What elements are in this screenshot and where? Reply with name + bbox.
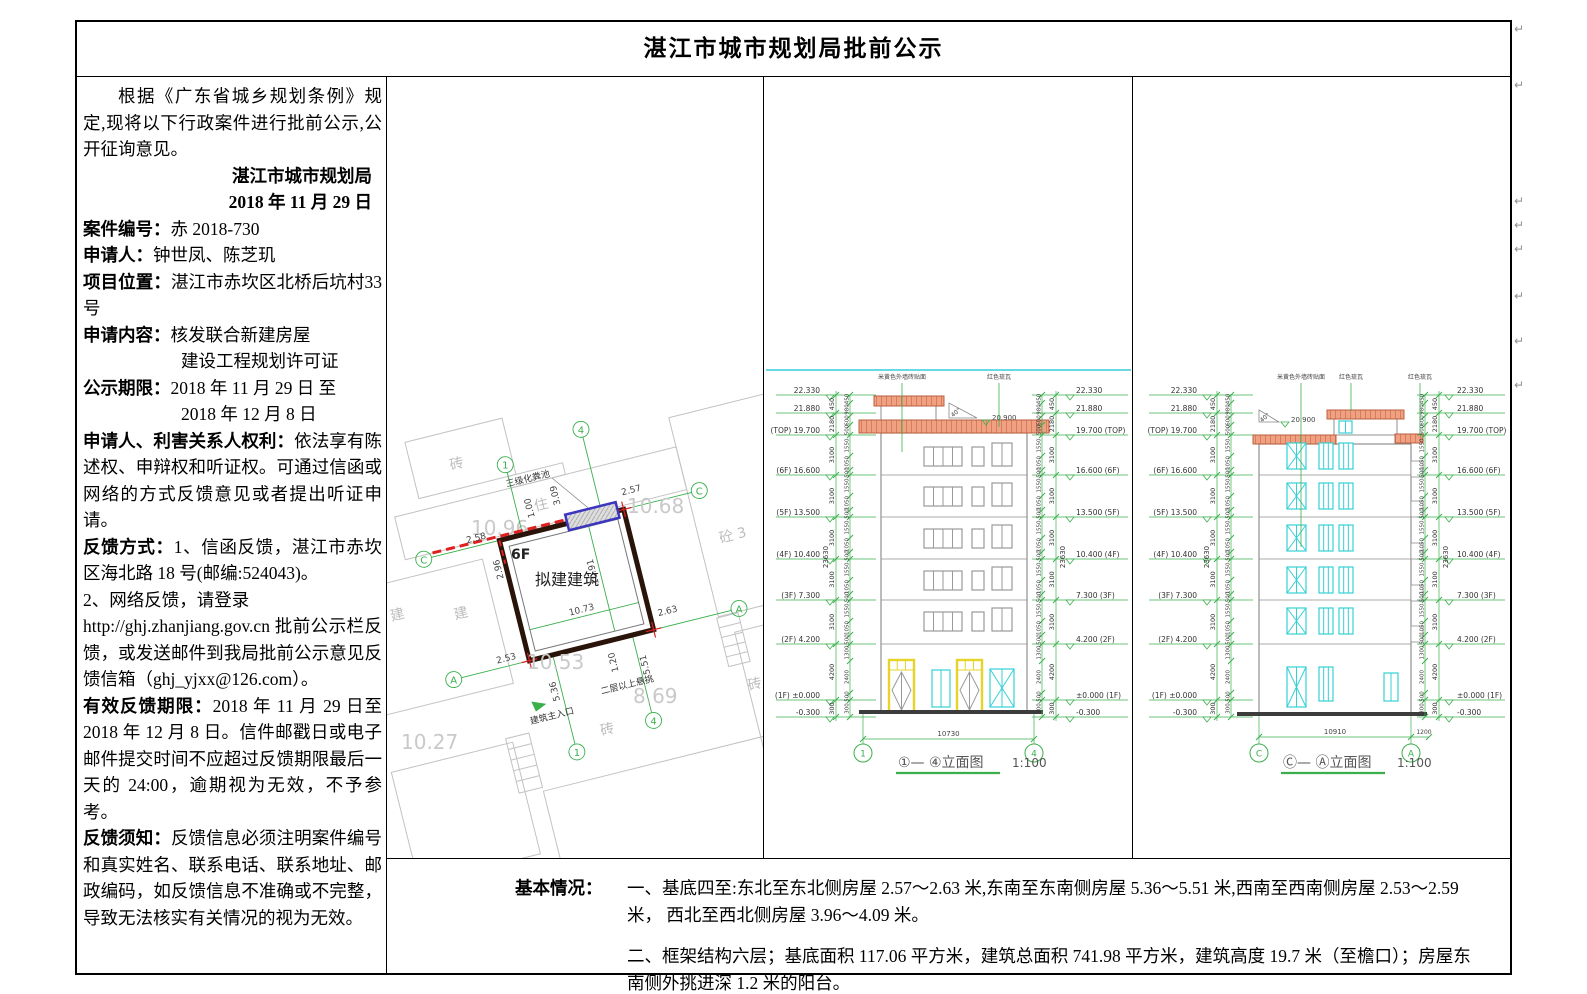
dim-value: 3100 xyxy=(1209,530,1217,547)
window xyxy=(1319,667,1333,701)
dim-value: 3100 xyxy=(828,488,836,505)
window xyxy=(972,447,984,466)
svg-text:1: 1 xyxy=(574,748,580,759)
level-label: (6F) 16.600 xyxy=(1153,466,1197,475)
roof-tile-band xyxy=(1327,410,1404,419)
total-dim: 23630 xyxy=(822,546,830,568)
site-plan-panel: 10.96 砖 住 砼 3 建 xyxy=(387,77,764,858)
period-value-2: 2018 年 12 月 8 日 xyxy=(181,401,382,428)
level-label: 4.200 (2F) xyxy=(1076,635,1115,644)
level-label: 21.880 xyxy=(1076,404,1102,413)
window xyxy=(1319,443,1333,469)
level-marker-icon xyxy=(1066,475,1074,480)
dim-value: 450 xyxy=(1048,398,1056,410)
level-label: (1F) ±0.000 xyxy=(775,691,820,700)
level-marker-icon xyxy=(1203,717,1211,722)
level-label: 4.200 (2F) xyxy=(1457,635,1496,644)
level-marker-icon xyxy=(1445,435,1453,440)
total-dim: 23630 xyxy=(1203,546,1211,568)
dim-value: 300 xyxy=(828,702,836,714)
dim-value: 300 xyxy=(845,703,851,714)
neighbor-label: 建 xyxy=(452,604,469,623)
dim-value: 2180 xyxy=(1209,416,1217,433)
dim-value: 450 xyxy=(1037,393,1043,404)
dim-value: 3100 xyxy=(1048,614,1056,631)
annotation-label: 红色琉瓦 xyxy=(1408,373,1432,381)
window xyxy=(972,487,984,506)
dim-value: 450 xyxy=(1209,398,1217,410)
dim-value: 980 xyxy=(1420,404,1426,415)
svg-text:4: 4 xyxy=(650,716,656,727)
dim-value: 500 xyxy=(845,508,851,519)
notice-row: 反馈须知：反馈信息必须注明案件编号和真实姓名、联系电话、联系地址、邮政编码，如反… xyxy=(83,825,382,931)
dim-value: 500 xyxy=(1037,591,1043,602)
level-label: (5F) 13.500 xyxy=(1153,508,1197,517)
dim-value: 500 xyxy=(1226,467,1232,478)
applicant-row: 申请人：钟世凤、陈芝玑 xyxy=(83,242,382,269)
dim-value: 500 xyxy=(845,467,851,478)
feedback-url-row: http://ghj.zhanjiang.gov.cn 批前公示栏反馈，或发送邮… xyxy=(83,613,382,693)
dim-value: 300 xyxy=(1420,703,1426,714)
level-label: -0.300 xyxy=(1173,708,1197,717)
level-label: 21.880 xyxy=(1457,404,1483,413)
level-label: (TOP) 19.700 xyxy=(771,426,821,435)
grid-bubble-label: 1 xyxy=(860,750,866,760)
dim-value: 3100 xyxy=(1209,571,1217,588)
period-label: 公示期限： xyxy=(83,378,171,398)
rights-label: 申请人、利害关系人权利： xyxy=(83,431,294,451)
dim-value: 500 xyxy=(1420,424,1426,435)
dim-value: 3100 xyxy=(828,530,836,547)
neighbor-label: 建 xyxy=(389,606,406,625)
dim-value: 1550 xyxy=(845,520,851,534)
basic-info-items: 一、基底四至:东北至东北侧房屋 2.57～2.63 米,东南至东南侧房屋 5.3… xyxy=(627,875,1510,994)
svg-text:A: A xyxy=(450,676,457,687)
level-marker-icon xyxy=(1066,700,1074,705)
level-marker-icon xyxy=(1066,717,1074,722)
total-dim: 23630 xyxy=(1059,546,1067,568)
dim-value: 600 xyxy=(845,415,851,426)
dim-value: 2400 xyxy=(845,670,851,684)
level-label: 7.300 (3F) xyxy=(1457,591,1496,600)
dim-value: 3100 xyxy=(1431,488,1439,505)
basic-info-label: 基本情况： xyxy=(515,875,627,902)
paragraph-mark-icon: ↵ xyxy=(1514,194,1524,208)
annotation-label: 米黄色外墙砖贴面 xyxy=(878,373,926,381)
dim-value: 1550 xyxy=(1420,478,1426,492)
location-label: 项目位置： xyxy=(83,272,171,292)
dim: 1.20 xyxy=(607,651,622,673)
dim-value: 1300 xyxy=(1226,645,1232,659)
svg-text:A: A xyxy=(736,604,743,615)
spot-elevation: 10.27 xyxy=(401,730,458,754)
dim-value: 1050 xyxy=(1037,496,1043,510)
notice-text-panel: 根据《广东省城乡规划条例》规定,现将以下行政案件进行批前公示,公开征询意见。 湛… xyxy=(77,77,387,973)
level-label: 10.400 (4F) xyxy=(1076,550,1120,559)
neighbor-label: 砖 xyxy=(599,720,616,739)
window xyxy=(1319,525,1333,551)
level-marker-icon xyxy=(1445,700,1453,705)
window xyxy=(972,612,984,631)
dim-value: 1050 xyxy=(845,538,851,552)
window xyxy=(1319,483,1333,509)
level-marker-icon xyxy=(1445,475,1453,480)
level-label: ±0.000 (1F) xyxy=(1076,691,1121,700)
window xyxy=(972,529,984,548)
dim-value: 3100 xyxy=(1048,447,1056,464)
dim-value: 4200 xyxy=(1431,664,1439,681)
ridge-marker-icon xyxy=(1281,422,1289,427)
level-label: 21.880 xyxy=(1171,404,1197,413)
content-value-2: 建设工程规划许可证 xyxy=(181,348,382,375)
case-number-value: 赤 2018-730 xyxy=(171,219,260,239)
ridge-level: 20.900 xyxy=(1291,416,1316,424)
dim-value: 1550 xyxy=(845,438,851,452)
level-label: 22.330 xyxy=(1076,386,1102,395)
stair-symbol-left xyxy=(506,733,543,793)
level-label: -0.300 xyxy=(1457,708,1481,717)
dim-value: 1050 xyxy=(1420,538,1426,552)
notice-label: 反馈须知： xyxy=(83,828,171,848)
page-title: 湛江市城市规划局批前公示 xyxy=(77,22,1510,77)
applicant-label: 申请人： xyxy=(83,245,153,265)
period-value-1: 2018 年 11 月 29 日 至 xyxy=(171,378,337,398)
intro-paragraph: 根据《广东省城乡规划条例》规定,现将以下行政案件进行批前公示,公开征询意见。 xyxy=(83,83,382,163)
neighbor-label: 砼 3 xyxy=(718,525,748,547)
slope-label: 40° xyxy=(950,407,963,419)
level-marker-icon xyxy=(1066,435,1074,440)
floors-label: 6F xyxy=(511,547,530,563)
dim-value: 4200 xyxy=(1209,664,1217,681)
dim-value: 500 xyxy=(1226,424,1232,435)
level-marker-icon xyxy=(1445,600,1453,605)
dim-value: 600 xyxy=(1420,415,1426,426)
level-label: (2F) 4.200 xyxy=(781,635,820,644)
dim-value: 450 xyxy=(828,398,836,410)
paragraph-mark-icon: ↵ xyxy=(1514,78,1524,92)
dim-value: 1550 xyxy=(1226,478,1232,492)
dim-value: 2180 xyxy=(1431,416,1439,433)
case-number-row: 案件编号：赤 2018-730 xyxy=(83,216,382,243)
dim-value: 1550 xyxy=(1037,603,1043,617)
dim-value: 500 xyxy=(1420,550,1426,561)
level-label: (4F) 10.400 xyxy=(1153,550,1197,559)
dim-value: 600 xyxy=(1226,415,1232,426)
window xyxy=(1339,443,1353,469)
level-marker-icon xyxy=(1066,517,1074,522)
dim-value: 3100 xyxy=(1048,571,1056,588)
dim-value: 1550 xyxy=(1226,603,1232,617)
svg-text:C: C xyxy=(420,555,427,566)
dim-value: 500 xyxy=(1037,550,1043,561)
balcony-dim-value: 1200 xyxy=(1416,729,1431,736)
level-label: (2F) 4.200 xyxy=(1158,635,1197,644)
dim-value: 3100 xyxy=(1431,571,1439,588)
window xyxy=(1319,608,1333,634)
dim-value: 500 xyxy=(1226,691,1232,702)
dim-value: 300 xyxy=(1048,702,1056,714)
feedback-web-row: 2、网络反馈，请登录 xyxy=(83,587,382,614)
level-marker-icon xyxy=(1445,413,1453,418)
dim-value: 3100 xyxy=(828,447,836,464)
scale-label: 1:100 xyxy=(1012,756,1047,770)
dim-value: 1050 xyxy=(1420,621,1426,635)
dim-value: 980 xyxy=(1037,404,1043,415)
plan-rotated-group: 砖 住 砼 3 建 建 砖 砖 xyxy=(387,325,764,858)
period-row: 公示期限：2018 年 11 月 29 日 至2018 年 12 月 8 日 xyxy=(83,375,382,428)
dim-value: 500 xyxy=(1420,634,1426,645)
basic-info-item-1: 一、基底四至:东北至东北侧房屋 2.57～2.63 米,东南至东南侧房屋 5.3… xyxy=(627,875,1486,929)
penthouse-wall xyxy=(881,406,936,420)
dim-value: 500 xyxy=(1037,691,1043,702)
content-row: 申请内容：核发联合新建房屋建设工程规划许可证 xyxy=(83,322,382,375)
feedback-label: 反馈方式： xyxy=(83,537,174,557)
dim-value: 980 xyxy=(1226,404,1232,415)
site-plan-drawing: 10.96 砖 住 砼 3 建 xyxy=(387,77,764,858)
rights-row: 申请人、利害关系人权利：依法享有陈述权、申辩权和听证权。可通过信函或网络的方式反… xyxy=(83,428,382,534)
annotation-label: 红色琉瓦 xyxy=(987,373,1011,381)
applicant-value: 钟世凤、陈芝玑 xyxy=(153,245,276,265)
dim-value: 1050 xyxy=(1037,621,1043,635)
deadline-label: 有效反馈期限： xyxy=(83,696,213,716)
dim-value: 500 xyxy=(1420,508,1426,519)
dim-value: 500 xyxy=(1420,467,1426,478)
content-value-1: 核发联合新建房屋 xyxy=(171,325,311,345)
dim-value: 450 xyxy=(1431,398,1439,410)
dim-value: 3100 xyxy=(828,614,836,631)
paragraph-mark-icon: ↵ xyxy=(1514,334,1524,348)
dim-value: 1050 xyxy=(1226,538,1232,552)
feedback-web: 2、网络反馈，请登录 xyxy=(83,590,249,610)
dim-value: 1550 xyxy=(845,562,851,576)
svg-text:4: 4 xyxy=(578,425,584,436)
dim: 5.51 xyxy=(639,654,654,676)
scale-label: 1:100 xyxy=(1397,756,1432,770)
dim-value: 1550 xyxy=(1226,520,1232,534)
dim-value: 3100 xyxy=(1431,530,1439,547)
dim-value: 500 xyxy=(1420,591,1426,602)
dim-value: 1550 xyxy=(1420,520,1426,534)
level-label: 16.600 (6F) xyxy=(1076,466,1120,475)
window xyxy=(1339,608,1353,634)
annotation-label: 米黄色外墙砖贴面 xyxy=(1277,373,1325,381)
dim-value: 3100 xyxy=(1209,614,1217,631)
dim-value: 500 xyxy=(1226,634,1232,645)
window xyxy=(1339,483,1353,509)
level-marker-icon xyxy=(1066,644,1074,649)
dim-value: 980 xyxy=(845,404,851,415)
level-marker-icon xyxy=(1203,435,1211,440)
level-label: 13.500 (5F) xyxy=(1076,508,1120,517)
dim-value: 1050 xyxy=(845,621,851,635)
deadline-row: 有效反馈期限：2018 年 11 月 29 日至 2018 年 12 月 8 日… xyxy=(83,693,382,826)
elevation-caption: ①— ④立面图 xyxy=(898,755,984,771)
level-label: (TOP) 19.700 xyxy=(1148,426,1198,435)
ridge-level: 20.900 xyxy=(992,414,1017,422)
level-label: (6F) 16.600 xyxy=(776,466,820,475)
level-label: (3F) 7.300 xyxy=(781,591,820,600)
dim-value: 3100 xyxy=(1431,614,1439,631)
level-label: 7.300 (3F) xyxy=(1076,591,1115,600)
annotation-label: 红色琉瓦 xyxy=(1339,373,1363,381)
level-label: 13.500 (5F) xyxy=(1457,508,1501,517)
level-label: 10.400 (4F) xyxy=(1457,550,1501,559)
level-marker-icon xyxy=(1203,475,1211,480)
paragraph-mark-icon: ↵ xyxy=(1514,378,1524,392)
dim-value: 1550 xyxy=(845,478,851,492)
dim-value: 4200 xyxy=(828,664,836,681)
dim-value: 2400 xyxy=(1420,670,1426,684)
dim-value: 450 xyxy=(1226,393,1232,404)
dim-value: 2180 xyxy=(828,416,836,433)
dim-value: 3100 xyxy=(1209,488,1217,505)
dim-value: 1550 xyxy=(845,603,851,617)
dim-value: 500 xyxy=(1226,550,1232,561)
level-label: 19.700 (TOP) xyxy=(1076,426,1126,435)
spot-elevation: 10.53 xyxy=(527,650,584,674)
window xyxy=(1339,567,1353,593)
dim-value: 3100 xyxy=(1048,488,1056,505)
level-label: -0.300 xyxy=(1076,708,1100,717)
notice-date: 2018 年 11 月 29 日 xyxy=(83,189,382,216)
paragraph-mark-icon: ↵ xyxy=(1514,242,1524,256)
dim-value: 4200 xyxy=(1048,664,1056,681)
dim-value: 1300 xyxy=(1037,645,1043,659)
dim-value: 3100 xyxy=(828,571,836,588)
case-number-label: 案件编号： xyxy=(83,219,171,239)
dim-value: 1550 xyxy=(1420,562,1426,576)
elevation-2-panel: 40°20.90022.33022.33021.88021.880(TOP) 1… xyxy=(1133,77,1514,858)
dim-value: 1550 xyxy=(1037,438,1043,452)
dim-value: 500 xyxy=(1226,591,1232,602)
building-label: 拟建建筑 xyxy=(535,570,599,589)
level-label: (4F) 10.400 xyxy=(776,550,820,559)
level-marker-icon xyxy=(1445,395,1453,400)
dim-value: 500 xyxy=(845,634,851,645)
dim-value: 450 xyxy=(845,393,851,404)
dim-value: 1050 xyxy=(845,496,851,510)
level-marker-icon xyxy=(1445,517,1453,522)
level-label: 22.330 xyxy=(1171,386,1197,395)
width-dim-value: 10730 xyxy=(937,730,959,738)
dim-value: 1050 xyxy=(1226,621,1232,635)
level-marker-icon xyxy=(1445,717,1453,722)
dim-value: 1550 xyxy=(1037,520,1043,534)
dim-value: 500 xyxy=(845,591,851,602)
dim-value: 500 xyxy=(1037,634,1043,645)
elevation-1-panel: 40°20.90022.33022.33021.88021.880(TOP) 1… xyxy=(764,77,1133,858)
dim-value: 1550 xyxy=(1037,478,1043,492)
level-marker-icon xyxy=(1066,413,1074,418)
dim-value: 1050 xyxy=(1226,496,1232,510)
paragraph-mark-icon: ↵ xyxy=(1514,22,1524,36)
level-label: 21.880 xyxy=(794,404,820,413)
level-label: 19.700 (TOP) xyxy=(1457,426,1507,435)
dim-value: 1550 xyxy=(1420,603,1426,617)
location-row: 项目位置：湛江市赤坎区北桥后坑村33 号 xyxy=(83,269,382,322)
dim-value: 500 xyxy=(1037,508,1043,519)
entrance-triangle-icon xyxy=(531,698,547,712)
dim-value: 1550 xyxy=(1226,562,1232,576)
level-marker-icon xyxy=(1066,600,1074,605)
dim-value: 600 xyxy=(1037,415,1043,426)
elevation-2-drawing: 40°20.90022.33022.33021.88021.880(TOP) 1… xyxy=(1133,77,1514,858)
dim-value: 500 xyxy=(845,691,851,702)
svg-text:1: 1 xyxy=(502,461,508,472)
window xyxy=(1339,525,1353,551)
dim-value: 1550 xyxy=(1420,438,1426,452)
notice-sheet: 湛江市城市规划局批前公示 根据《广东省城乡规划条例》规定,现将以下行政案件进行批… xyxy=(75,20,1512,975)
dim-value: 1050 xyxy=(1420,496,1426,510)
dim-value: 2180 xyxy=(1048,416,1056,433)
dim-value: 500 xyxy=(845,424,851,435)
level-marker-icon xyxy=(1203,600,1211,605)
dim-value: 500 xyxy=(845,550,851,561)
dim-value: 500 xyxy=(1226,508,1232,519)
level-label: 22.330 xyxy=(794,386,820,395)
dim-value: 3100 xyxy=(1209,447,1217,464)
svg-text:C: C xyxy=(696,487,703,498)
dim-value: 300 xyxy=(1431,702,1439,714)
dim-value: 300 xyxy=(1037,703,1043,714)
neighbor-label: 砖 xyxy=(448,455,465,474)
elevation-caption: Ⓒ— Ⓐ立面图 xyxy=(1283,755,1371,771)
level-label: (3F) 7.300 xyxy=(1158,591,1197,600)
level-marker-icon xyxy=(1203,517,1211,522)
level-marker-icon xyxy=(1445,644,1453,649)
dim-value: 1300 xyxy=(1420,645,1426,659)
dim: 5.36 xyxy=(548,680,563,702)
dim: 2.63 xyxy=(657,605,679,620)
level-marker-icon xyxy=(1203,644,1211,649)
document-canvas: 湛江市城市规划局批前公示 根据《广东省城乡规划条例》规定,现将以下行政案件进行批… xyxy=(0,0,1587,994)
total-dim: 23630 xyxy=(1442,546,1450,568)
feedback-row: 反馈方式：1、信函反馈，湛江市赤坎区海北路 18 号(邮编:524043)。 xyxy=(83,534,382,587)
roof-tile-band xyxy=(874,396,944,406)
spot-elevation: 10.68 xyxy=(627,494,684,518)
content-label: 申请内容： xyxy=(83,325,171,345)
level-label: (1F) ±0.000 xyxy=(1152,691,1197,700)
dim-value: 2400 xyxy=(1037,670,1043,684)
dim: 3.09 xyxy=(549,484,564,506)
elevation-1-drawing: 40°20.90022.33022.33021.88021.880(TOP) 1… xyxy=(764,77,1133,858)
dim-value: 1550 xyxy=(1226,438,1232,452)
dim-value: 500 xyxy=(1420,691,1426,702)
paragraph-mark-icon: ↵ xyxy=(1514,289,1524,303)
roof-tile-band xyxy=(859,420,1049,433)
level-label: (5F) 13.500 xyxy=(776,508,820,517)
dim-value: 500 xyxy=(1037,467,1043,478)
dim-value: 3100 xyxy=(1048,530,1056,547)
dim-value: 1550 xyxy=(1037,562,1043,576)
neighbor-label: 砖 xyxy=(746,675,763,694)
dim-value: 300 xyxy=(1226,703,1232,714)
level-label: 22.330 xyxy=(1457,386,1483,395)
dim-value: 3100 xyxy=(1431,447,1439,464)
basic-info-item-2: 二、框架结构六层；基底面积 117.06 平方米，建筑总面积 741.98 平方… xyxy=(627,943,1486,994)
window xyxy=(1319,567,1333,593)
dim-value: 450 xyxy=(1420,393,1426,404)
dim-value: 2400 xyxy=(1226,670,1232,684)
width-dim-value: 10910 xyxy=(1324,728,1346,736)
agency-name: 湛江市城市规划局 xyxy=(83,163,382,190)
grid-bubble-label: C xyxy=(1256,750,1262,760)
septic-label: 三级化粪池 xyxy=(505,467,552,490)
feedback-url: http://ghj.zhanjiang.gov.cn 批前公示栏反馈，或发送邮… xyxy=(83,616,382,689)
dim-value: 1300 xyxy=(845,645,851,659)
level-label: -0.300 xyxy=(796,708,820,717)
level-label: ±0.000 (1F) xyxy=(1457,691,1502,700)
